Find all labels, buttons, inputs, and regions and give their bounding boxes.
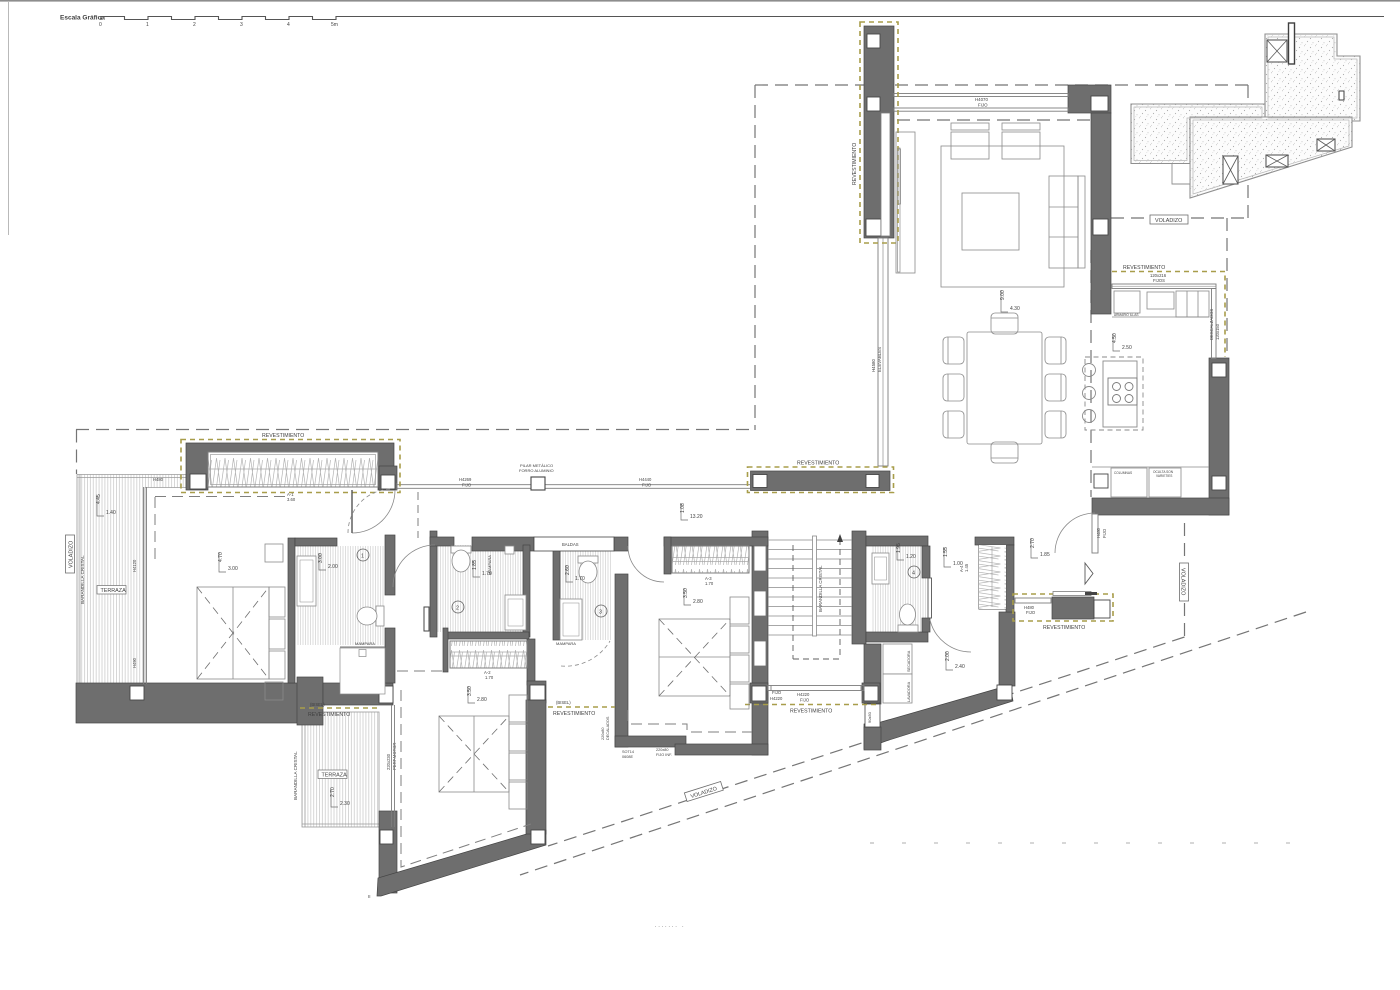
svg-text:H4220: H4220 [770, 696, 783, 701]
svg-text:REVESTIMIENTO: REVESTIMIENTO [1043, 625, 1085, 631]
svg-text:2.40: 2.40 [955, 664, 965, 670]
svg-text:4.70: 4.70 [218, 552, 224, 562]
svg-text:3.60: 3.60 [287, 497, 296, 502]
svg-text:H4070: H4070 [975, 97, 988, 102]
svg-text:1.20: 1.20 [906, 554, 916, 560]
svg-text:2.80: 2.80 [477, 697, 487, 703]
svg-text:1.70: 1.70 [705, 581, 714, 586]
svg-text:ARMARIO ILLAS: ARMARIO ILLAS [1114, 313, 1138, 317]
svg-text:2.80: 2.80 [693, 599, 703, 605]
svg-text:....... .: ....... . [655, 923, 686, 929]
svg-text:H480: H480 [1096, 527, 1101, 538]
svg-text:(BISEL): (BISEL) [556, 700, 571, 705]
svg-text:0: 0 [99, 22, 102, 28]
svg-text:FIJO: FIJO [800, 698, 810, 703]
svg-text:1.55: 1.55 [943, 547, 949, 557]
svg-text:Escala Gráfica: Escala Gráfica [60, 15, 105, 22]
svg-text:REVESTIMIENTO: REVESTIMIENTO [852, 143, 858, 185]
svg-text:3: 3 [240, 22, 243, 28]
svg-text:DECALADOS: DECALADOS [606, 716, 610, 740]
svg-text:FIJO: FIJO [1026, 610, 1036, 615]
svg-text:4: 4 [287, 22, 290, 28]
svg-text:FIJO: FIJO [978, 103, 988, 108]
svg-text:FIJO INF.: FIJO INF. [656, 753, 672, 757]
svg-text:220x80: 220x80 [601, 728, 605, 740]
svg-text:220x230: 220x230 [386, 753, 391, 770]
svg-text:REVESTIMIENTO: REVESTIMIENTO [790, 709, 832, 715]
svg-text:220x80: 220x80 [656, 748, 668, 752]
svg-text:2: 2 [193, 22, 196, 28]
svg-text:H4580: H4580 [871, 359, 876, 372]
svg-text:SECADORA: SECADORA [907, 650, 911, 672]
svg-text:H4269: H4269 [459, 477, 472, 482]
svg-text:VOLADIZO: VOLADIZO [1180, 568, 1186, 595]
svg-text:90x50: 90x50 [867, 711, 872, 723]
svg-text:II: II [368, 894, 371, 899]
svg-text:VOLADIZO: VOLADIZO [1155, 218, 1182, 224]
svg-text:REVESTIMIENTO: REVESTIMIENTO [1123, 265, 1165, 271]
svg-text:1: 1 [361, 554, 364, 560]
svg-text:1.85: 1.85 [472, 560, 478, 570]
svg-text:2.70: 2.70 [1030, 538, 1036, 548]
svg-text:1.70: 1.70 [485, 675, 494, 680]
svg-text:REVESTIMIENTO: REVESTIMIENTO [797, 461, 839, 467]
svg-text:VARIETIES: VARIETIES [1156, 474, 1172, 478]
svg-text:BARANDILLA CRISTAL: BARANDILLA CRISTAL [80, 555, 85, 604]
svg-text:1.85: 1.85 [1040, 552, 1050, 558]
svg-text:4.30: 4.30 [1010, 306, 1020, 312]
svg-text:MAMPARA: MAMPARA [355, 641, 375, 646]
svg-text:FIJOS: FIJOS [1153, 278, 1165, 283]
svg-text:4: 4 [912, 571, 915, 577]
svg-text:1.40: 1.40 [106, 510, 116, 516]
svg-text:MAMPARA: MAMPARA [487, 555, 492, 575]
svg-text:(BISEL): (BISEL) [310, 702, 325, 707]
svg-text:3: 3 [599, 610, 602, 616]
svg-text:REVESTIMIENTO: REVESTIMIENTO [553, 711, 595, 717]
svg-text:ELEVABLES: ELEVABLES [877, 347, 882, 372]
svg-text:LAVADORA: LAVADORA [907, 681, 911, 702]
svg-text:3.50: 3.50 [467, 686, 473, 696]
svg-text:1.70: 1.70 [575, 576, 585, 582]
svg-text:13.20: 13.20 [690, 514, 703, 520]
svg-text:DESCALZADOS: DESCALZADOS [1209, 309, 1214, 340]
svg-text:1.95: 1.95 [896, 543, 902, 553]
svg-text:2.70: 2.70 [330, 787, 336, 797]
svg-text:120x150: 120x150 [1215, 323, 1220, 340]
svg-text:FORRO ALUMINIO: FORRO ALUMINIO [519, 468, 554, 473]
svg-text:H480: H480 [153, 477, 164, 482]
svg-text:REVESTIMIENTO: REVESTIMIENTO [262, 433, 304, 439]
svg-text:3.00: 3.00 [318, 553, 324, 563]
svg-text:BALDAS: BALDAS [562, 542, 579, 547]
svg-text:H490: H490 [132, 657, 137, 668]
svg-text:TERRAZA: TERRAZA [101, 588, 127, 594]
svg-text:FIJO: FIJO [772, 690, 782, 695]
svg-text:FIJO: FIJO [1102, 528, 1107, 538]
svg-text:VOLADIZO: VOLADIZO [69, 541, 75, 568]
svg-text:REVESTIMIENTO: REVESTIMIENTO [308, 712, 350, 718]
svg-text:H4440: H4440 [639, 477, 652, 482]
svg-text:BARANDILLA CRISTAL: BARANDILLA CRISTAL [293, 751, 298, 800]
svg-text:2.30: 2.30 [340, 801, 350, 807]
svg-text:9.00: 9.00 [1000, 290, 1006, 300]
svg-text:1: 1 [146, 22, 149, 28]
svg-text:1.08: 1.08 [680, 503, 686, 513]
svg-text:4.45: 4.45 [96, 494, 102, 504]
svg-text:H4120: H4120 [132, 559, 137, 572]
svg-text:3.00: 3.00 [228, 566, 238, 572]
svg-text:0608E: 0608E [622, 755, 633, 759]
svg-text:MAMPARA: MAMPARA [556, 641, 576, 646]
svg-text:BARANDILLA CRISTAL: BARANDILLA CRISTAL [818, 565, 823, 612]
svg-text:2.00: 2.00 [945, 651, 951, 661]
svg-text:2.50: 2.50 [1122, 345, 1132, 351]
svg-text:4.50: 4.50 [1112, 333, 1118, 343]
svg-text:1.45: 1.45 [964, 563, 969, 572]
svg-text:2.60: 2.60 [565, 565, 571, 575]
svg-text:SOT14: SOT14 [622, 750, 634, 754]
svg-text:FIJO: FIJO [462, 483, 472, 488]
svg-text:TERRAZA: TERRAZA [322, 773, 348, 779]
svg-text:5m: 5m [331, 22, 338, 28]
svg-text:COLUMNAS: COLUMNAS [1114, 471, 1132, 475]
svg-text:FIJO: FIJO [642, 483, 652, 488]
svg-text:H4220: H4220 [797, 692, 810, 697]
svg-text:3.50: 3.50 [683, 588, 689, 598]
svg-text:2.00: 2.00 [328, 564, 338, 570]
svg-text:2: 2 [456, 606, 459, 612]
